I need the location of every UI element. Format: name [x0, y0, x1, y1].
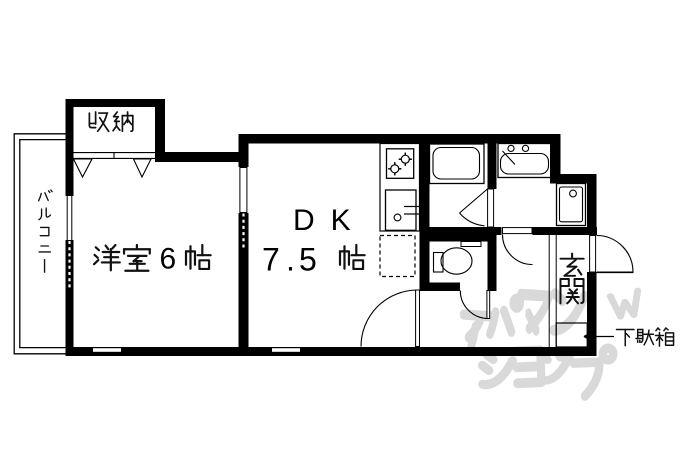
svg-text:.: . [286, 242, 295, 278]
svg-text:7: 7 [262, 242, 280, 278]
svg-text:DK: DK [293, 204, 367, 237]
svg-text:6: 6 [160, 243, 177, 276]
svg-text:5: 5 [299, 242, 317, 278]
